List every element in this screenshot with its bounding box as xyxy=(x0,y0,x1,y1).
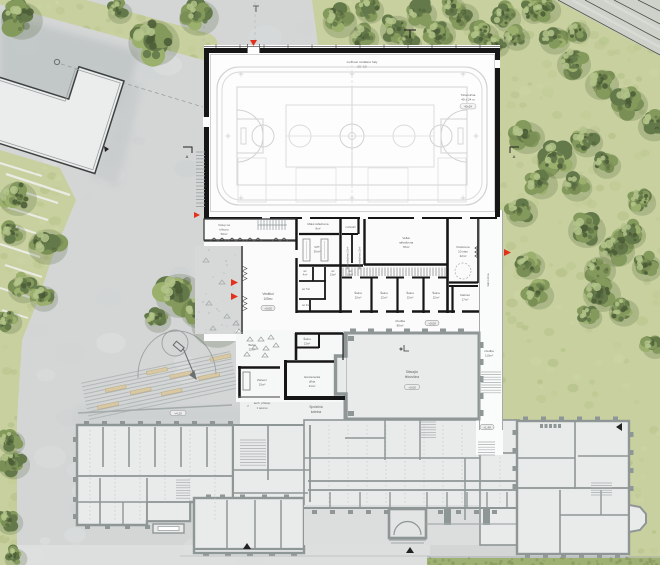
svg-text:40x24: 40x24 xyxy=(464,105,472,109)
svg-text:8m²: 8m² xyxy=(316,227,321,231)
svg-text:šatní zóna: šatní zóna xyxy=(486,273,490,286)
svg-text:tribunu: tribunu xyxy=(219,228,229,232)
svg-text:50m²: 50m² xyxy=(221,232,228,236)
svg-text:A: A xyxy=(513,154,516,159)
svg-text:A: A xyxy=(186,154,189,159)
svg-text:1/2 - 1/2: 1/2 - 1/2 xyxy=(357,65,367,69)
svg-text:15m²: 15m² xyxy=(330,273,336,277)
svg-text:14m²: 14m² xyxy=(347,273,353,277)
svg-text:Kabinet: Kabinet xyxy=(460,293,470,297)
svg-text:VZT: VZT xyxy=(314,245,320,249)
svg-text:Šatna: Šatna xyxy=(303,336,311,341)
svg-text:42m²: 42m² xyxy=(460,254,467,258)
svg-text:nářaďovna: nářaďovna xyxy=(399,241,414,245)
svg-text:Šatna: Šatna xyxy=(406,290,414,295)
svg-text:kotelna: kotelna xyxy=(311,410,322,414)
svg-text:Stávající: Stávající xyxy=(406,370,418,374)
svg-text:78m²: 78m² xyxy=(403,245,410,249)
svg-text:+0,00: +0,00 xyxy=(428,321,436,325)
svg-text:rozhodčí: rozhodčí xyxy=(346,225,356,229)
svg-text:32m²: 32m² xyxy=(249,348,256,352)
svg-text:30m²: 30m² xyxy=(314,250,321,254)
svg-text:Tělocvična: Tělocvična xyxy=(461,93,476,97)
svg-text:Malá nářaďovna: Malá nářaďovna xyxy=(308,222,329,226)
svg-text:Malá nářaďovna 10m²: Malá nářaďovna 10m² xyxy=(359,247,362,270)
svg-text:+4,20: +4,20 xyxy=(174,411,182,415)
svg-text:Posilovna: Posilovna xyxy=(456,245,469,249)
svg-text:+0,00: +0,00 xyxy=(408,385,416,389)
svg-text:110m²: 110m² xyxy=(485,354,493,358)
svg-text:Velká: Velká xyxy=(402,236,410,240)
svg-text:Šatna: Šatna xyxy=(354,290,362,295)
svg-text:22m²: 22m² xyxy=(381,296,388,300)
svg-text:22m²: 22m² xyxy=(355,296,362,300)
svg-text:+1,40: +1,40 xyxy=(483,425,491,429)
svg-text:Šatna: Šatna xyxy=(432,290,440,295)
svg-text:4m²: 4m² xyxy=(303,273,308,277)
svg-text:Malá nářaďovna 10m²: Malá nářaďovna 10m² xyxy=(347,247,350,270)
svg-text:21m²: 21m² xyxy=(304,342,310,346)
svg-text:15m²: 15m² xyxy=(259,383,266,387)
svg-text:možnost rozdělení haly: možnost rozdělení haly xyxy=(347,60,378,64)
svg-text:dílna: dílna xyxy=(309,380,316,384)
svg-text:17m²: 17m² xyxy=(462,298,469,302)
svg-text:Horolezecká: Horolezecká xyxy=(304,375,320,379)
svg-text:Vstup na: Vstup na xyxy=(218,223,230,227)
svg-text:10 stan: 10 stan xyxy=(458,250,468,254)
svg-text:chodba: chodba xyxy=(484,349,494,353)
svg-text:Šatna: Šatna xyxy=(380,290,388,295)
svg-text:Zázemí: Zázemí xyxy=(257,378,267,382)
svg-text:z terénu: z terénu xyxy=(257,406,268,410)
svg-text:22m²: 22m² xyxy=(433,296,440,300)
svg-text:105m²: 105m² xyxy=(263,297,272,301)
svg-text:41m²: 41m² xyxy=(309,384,316,388)
svg-text:22m²: 22m² xyxy=(407,296,414,300)
svg-text:40 x 24 m: 40 x 24 m xyxy=(461,98,475,102)
svg-text:wc 2m²: wc 2m² xyxy=(302,304,310,307)
svg-text:+0,00: +0,00 xyxy=(264,306,272,310)
svg-text:wc 7m²: wc 7m² xyxy=(302,288,310,291)
svg-text:Vestibul: Vestibul xyxy=(262,292,273,296)
svg-text:80m²: 80m² xyxy=(397,324,404,328)
svg-text:>: > xyxy=(247,404,249,408)
svg-text:Společná: Společná xyxy=(309,405,323,409)
svg-text:tělocvična: tělocvična xyxy=(405,375,419,379)
svg-text:chodba: chodba xyxy=(395,319,405,323)
